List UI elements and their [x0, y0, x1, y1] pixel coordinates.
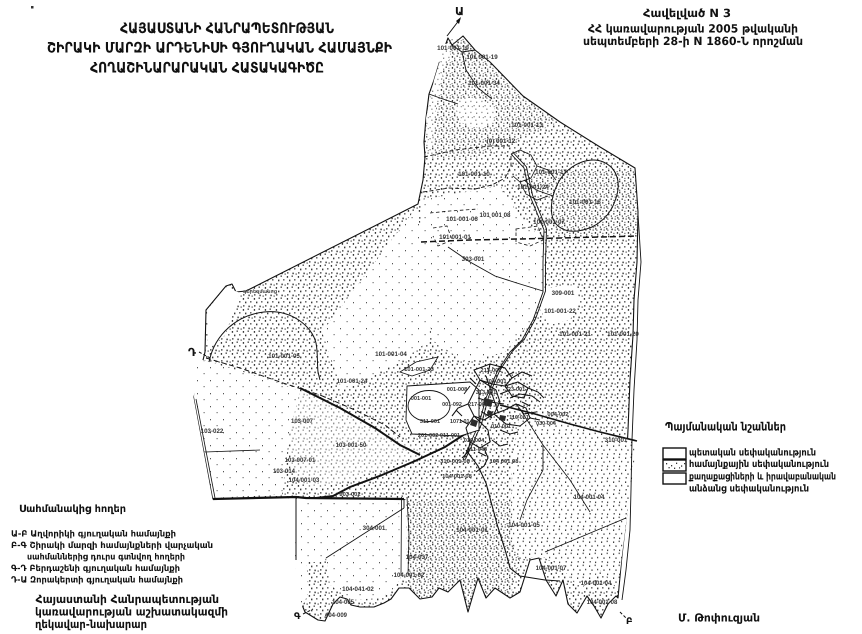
- svg-text:104-001-01: 104-001-01: [456, 527, 488, 534]
- svg-text:304-001: 304-001: [363, 525, 386, 532]
- svg-text:104-001-08: 104-001-08: [442, 474, 472, 480]
- svg-text:104-001: 104-001: [485, 379, 507, 385]
- svg-text:217-001: 217-001: [468, 402, 488, 408]
- svg-text:101-001-24: 101-001-24: [517, 184, 549, 191]
- svg-text:101-001-20: 101-001-20: [607, 331, 639, 338]
- svg-text:311-001: 311-001: [420, 419, 440, 425]
- svg-text:101-001-13: 101-001-13: [511, 122, 543, 129]
- svg-text:004-002: 004-002: [547, 412, 568, 418]
- svg-text:101-001-10: 101-001-10: [458, 171, 490, 178]
- svg-text:310-001: 310-001: [605, 437, 628, 444]
- svg-text:103-014: 103-014: [273, 469, 296, 475]
- svg-text:010-004: 010-004: [464, 438, 485, 444]
- svg-text:104-001-07: 104-001-07: [536, 566, 567, 572]
- svg-text:1071 01 0: 1071 01 0: [450, 419, 474, 425]
- svg-text:101-001-04: 101-001-04: [375, 351, 407, 358]
- svg-text:101-001-18: 101-001-18: [569, 199, 601, 206]
- svg-text:101-001-21: 101-001-21: [559, 331, 591, 338]
- svg-text:103-001-50: 103-001-50: [336, 443, 367, 449]
- svg-text:101-001-01: 101-001-01: [439, 234, 471, 241]
- svg-text:323-001: 323-001: [505, 387, 526, 393]
- svg-text:011-043: 011-043: [467, 447, 487, 453]
- svg-text:101-001-23: 101-001-23: [404, 367, 434, 373]
- svg-text:213-001: 213-001: [480, 368, 502, 374]
- svg-text:104-001-08: 104-001-08: [587, 600, 618, 606]
- svg-text:(0) 001-12: (0) 001-12: [487, 138, 516, 145]
- svg-text:101-001-34: 101-001-34: [468, 80, 500, 87]
- svg-text:030-004: 030-004: [536, 421, 556, 427]
- svg-text:101-001-19: 101-001-19: [437, 45, 469, 52]
- svg-text:103-007: 103-007: [291, 419, 314, 425]
- svg-text:103-007-01: 103-007-01: [285, 458, 316, 464]
- svg-text:104-001-03: 104-001-03: [289, 478, 320, 484]
- svg-text:104-001-04: 104-001-04: [581, 581, 612, 587]
- svg-text:101-001-17: 101-001-17: [535, 169, 567, 176]
- svg-text:404-009: 404-009: [325, 613, 348, 619]
- svg-text:303-002: 303-002: [339, 492, 360, 498]
- svg-text:201-002 011-001: 201-002 011-001: [418, 433, 460, 439]
- svg-text:104-001-05: 104-001-05: [508, 522, 540, 529]
- svg-text:303-001: 303-001: [462, 256, 485, 263]
- svg-text:104 001 08: 104 001 08: [489, 459, 519, 465]
- svg-text:104-041-02: 104-041-02: [342, 586, 374, 593]
- svg-text:104-037: 104-037: [406, 554, 429, 561]
- svg-text:104-005: 104-005: [332, 600, 355, 606]
- svg-text:104-001-02: 104-001-02: [394, 573, 425, 579]
- svg-text:010-001: 010-001: [491, 424, 511, 430]
- svg-text:110-001: 110-001: [509, 415, 529, 421]
- svg-text:310-001-08: 310-001-08: [440, 459, 470, 465]
- svg-text:309-001: 309-001: [552, 290, 575, 297]
- svg-text:101 001 08: 101 001 08: [480, 212, 512, 219]
- svg-text:101-001-07: 101-001-07: [533, 219, 565, 226]
- svg-text:101 001-19: 101 001-19: [466, 54, 498, 61]
- svg-text:101-001-24: 101-001-24: [337, 379, 368, 385]
- svg-text:313-001: 313-001: [476, 390, 497, 396]
- svg-text:103-022: 103-022: [201, 428, 224, 435]
- svg-text:001-008: 001-008: [447, 387, 468, 393]
- svg-text:104-001-04: 104-001-04: [574, 495, 605, 501]
- svg-text:101-001-06: 101-001-06: [446, 216, 478, 223]
- svg-text:001-001: 001-001: [411, 396, 432, 402]
- svg-text:101-001-05: 101-001-05: [268, 353, 300, 360]
- svg-text:001-092: 001-092: [442, 402, 462, 408]
- svg-text:101-001-22: 101-001-22: [544, 308, 576, 315]
